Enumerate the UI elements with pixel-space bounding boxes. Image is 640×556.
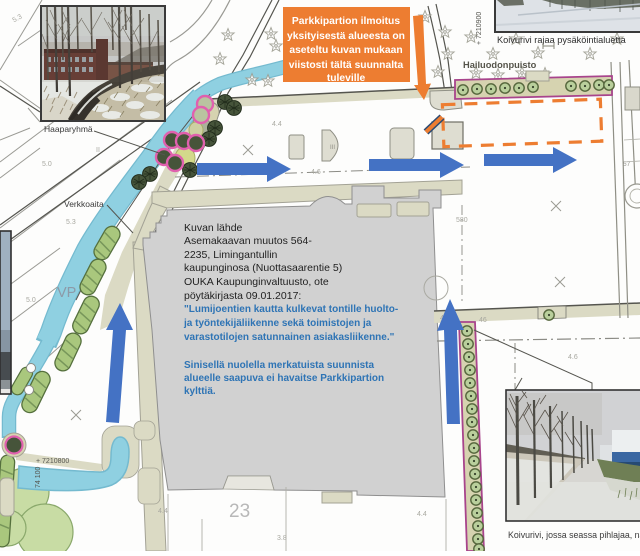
svg-text:kylttiä.: kylttiä. xyxy=(184,386,216,397)
svg-text:varastotilojen satunnainen asi: varastotilojen satunnainen asiakasliiken… xyxy=(184,332,395,343)
svg-text:"Lumijoentien kautta kulkevat: "Lumijoentien kautta kulkevat tontille h… xyxy=(184,304,398,315)
svg-text:5.3: 5.3 xyxy=(66,219,76,226)
svg-text:alueelle saapuva ei havaitse P: alueelle saapuva ei havaitse Parkkiparti… xyxy=(184,373,384,384)
svg-text:viistosti tältä suunnalta: viistosti tältä suunnalta xyxy=(289,60,404,71)
svg-text:46: 46 xyxy=(479,317,487,324)
svg-text:57: 57 xyxy=(623,161,631,168)
svg-text:4.4: 4.4 xyxy=(272,121,282,128)
svg-text:Hailuodonpuisto: Hailuodonpuisto xyxy=(463,60,537,70)
svg-text:4.6: 4.6 xyxy=(568,354,578,361)
svg-text:5.0: 5.0 xyxy=(26,297,36,304)
svg-text:4.4: 4.4 xyxy=(158,508,168,515)
svg-text:ja työntekijäliikenne sekä toi: ja työntekijäliikenne sekä toimistojen j… xyxy=(183,318,372,329)
svg-text:II: II xyxy=(96,147,100,154)
svg-text:Sinisellä nuolella merkatuista: Sinisellä nuolella merkatuista suunnista xyxy=(184,360,374,371)
svg-text:Parkkipartion ilmoitus: Parkkipartion ilmoitus xyxy=(292,16,400,27)
svg-text:2235, Limingantullin: 2235, Limingantullin xyxy=(184,249,278,261)
svg-text:kaupunginosa (Nuottasaarentie: kaupunginosa (Nuottasaarentie 5) xyxy=(184,262,342,274)
svg-text:OUKA Kaupunginvaltuusto, ote: OUKA Kaupunginvaltuusto, ote xyxy=(184,276,329,288)
svg-text:74 100: 74 100 xyxy=(35,466,42,488)
svg-text:Kuvan lähde: Kuvan lähde xyxy=(184,222,243,234)
svg-text:23: 23 xyxy=(229,501,250,522)
svg-text:pöytäkirjasta 09.01.2017:: pöytäkirjasta 09.01.2017: xyxy=(184,290,301,302)
svg-text:Koivurivi, jossa seassa pihlaj: Koivurivi, jossa seassa pihlajaa, näk xyxy=(508,530,640,540)
svg-text:+ 7210800: + 7210800 xyxy=(36,458,69,465)
svg-text:tuleville: tuleville xyxy=(327,73,366,84)
svg-text:5.0: 5.0 xyxy=(42,161,52,168)
svg-text:VP: VP xyxy=(57,285,76,301)
svg-text:3.8: 3.8 xyxy=(277,535,287,542)
svg-text:Verkkoaita: Verkkoaita xyxy=(64,199,104,209)
svg-text:4.4: 4.4 xyxy=(417,511,427,518)
svg-text:580: 580 xyxy=(456,217,468,224)
svg-text:Asemakaavan muutos 564-: Asemakaavan muutos 564- xyxy=(184,235,312,247)
svg-text:+ 7210900: + 7210900 xyxy=(476,12,483,45)
svg-text:III: III xyxy=(330,145,335,151)
svg-text:yksityisestä alueesta on: yksityisestä alueesta on xyxy=(287,31,405,42)
svg-text:4.6: 4.6 xyxy=(311,169,321,176)
svg-text:aseteltu kuvan mukaan: aseteltu kuvan mukaan xyxy=(289,45,402,56)
svg-text:Haaparyhmä: Haaparyhmä xyxy=(44,124,93,134)
svg-text:Koivurivi rajaa pysäköintialue: Koivurivi rajaa pysäköintialuetta xyxy=(497,35,627,45)
